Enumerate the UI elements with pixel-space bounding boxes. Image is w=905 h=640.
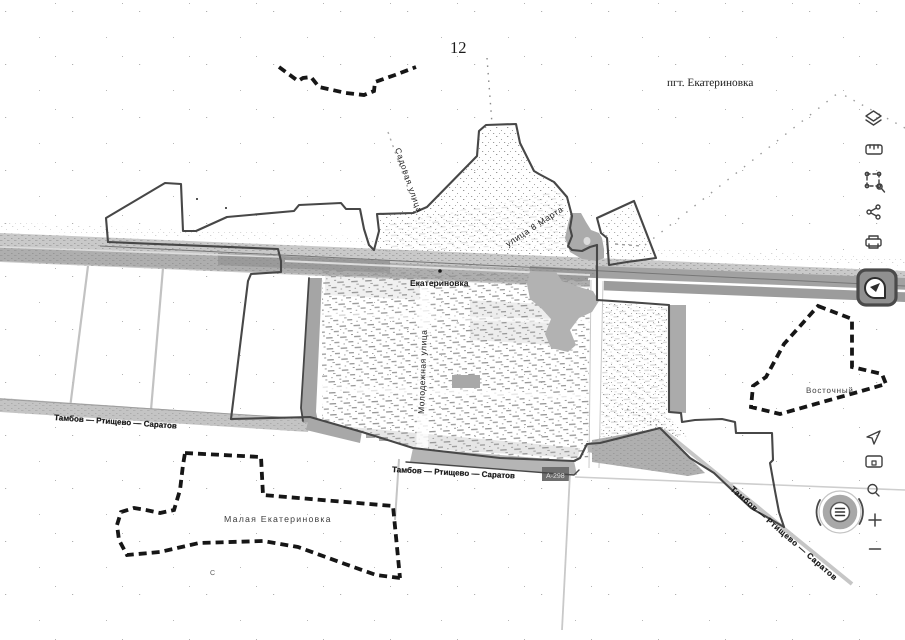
svg-text:Малая Екатериновка: Малая Екатериновка: [224, 514, 332, 524]
svg-text:12: 12: [450, 38, 467, 57]
svg-text:пгт. Екатериновка: пгт. Екатериновка: [667, 77, 753, 89]
svg-text:Екатериновка: Екатериновка: [410, 278, 469, 288]
svg-text:C: C: [210, 570, 215, 577]
svg-text:А-298: А-298: [546, 473, 565, 480]
svg-text:Восточный: Восточный: [806, 386, 854, 395]
